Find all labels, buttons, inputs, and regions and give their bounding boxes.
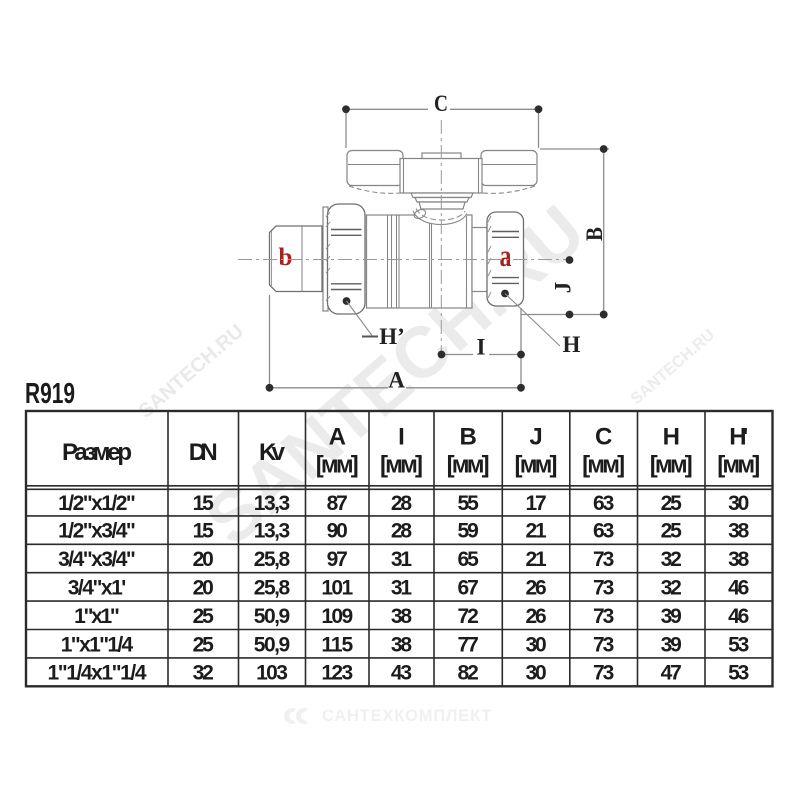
svg-text:65: 65 [458, 548, 480, 571]
svg-text:90: 90 [327, 520, 348, 543]
svg-text:[мм]: [мм] [316, 452, 359, 479]
svg-text:a: a [500, 238, 512, 273]
svg-text:30: 30 [728, 492, 749, 515]
svg-text:63: 63 [593, 520, 614, 543]
svg-text:72: 72 [458, 605, 479, 628]
svg-text:53: 53 [728, 662, 749, 685]
svg-text:H: H [663, 424, 680, 451]
svg-text:[мм]: [мм] [582, 452, 625, 479]
svg-text:A: A [329, 424, 346, 451]
svg-text:32: 32 [193, 662, 214, 685]
svg-text:B: B [582, 227, 607, 241]
svg-text:103: 103 [256, 662, 288, 685]
svg-text:A: A [388, 368, 405, 393]
svg-text:20: 20 [193, 548, 214, 571]
svg-text:C: C [595, 424, 612, 451]
svg-text:17: 17 [525, 492, 546, 515]
svg-text:39: 39 [661, 605, 682, 628]
svg-text:1"x1": 1"x1" [74, 605, 120, 628]
svg-text:[мм]: [мм] [717, 452, 760, 479]
svg-text:39: 39 [661, 633, 682, 656]
svg-text:J: J [529, 424, 542, 451]
svg-text:32: 32 [661, 577, 682, 600]
svg-text:1"1/4x1"1/4: 1"1/4x1"1/4 [48, 662, 147, 685]
svg-text:13,3: 13,3 [254, 520, 290, 543]
svg-text:53: 53 [728, 633, 749, 656]
svg-text:123: 123 [321, 662, 353, 685]
svg-text:46: 46 [728, 605, 749, 628]
svg-text:1/2"x3/4": 1/2"x3/4" [58, 520, 136, 543]
svg-text:87: 87 [327, 492, 348, 515]
svg-text:21: 21 [525, 520, 547, 543]
svg-text:73: 73 [593, 662, 614, 685]
svg-text:47: 47 [661, 662, 682, 685]
svg-text:28: 28 [391, 492, 413, 515]
svg-text:38: 38 [728, 548, 750, 571]
svg-text:I: I [477, 335, 486, 360]
svg-text:Hʹ: Hʹ [729, 424, 748, 451]
svg-text:25: 25 [661, 492, 683, 515]
svg-text:25: 25 [193, 633, 215, 656]
svg-text:САНТЕХКОМПЛЕКТ: САНТЕХКОМПЛЕКТ [322, 707, 492, 725]
svg-text:1/2"x1/2": 1/2"x1/2" [58, 492, 136, 515]
svg-text:15: 15 [193, 492, 215, 515]
svg-text:25,8: 25,8 [254, 548, 291, 571]
svg-text:30: 30 [525, 633, 546, 656]
svg-text:73: 73 [593, 605, 614, 628]
svg-text:25: 25 [661, 520, 683, 543]
svg-text:55: 55 [458, 492, 480, 515]
svg-text:[мм]: [мм] [650, 452, 693, 479]
svg-text:1"x1"1/4: 1"x1"1/4 [61, 633, 134, 656]
svg-text:H: H [563, 332, 581, 357]
svg-text:28: 28 [391, 520, 413, 543]
svg-text:115: 115 [321, 633, 353, 656]
svg-text:b: b [279, 244, 293, 271]
svg-text:73: 73 [593, 633, 614, 656]
svg-text:26: 26 [525, 605, 546, 628]
svg-text:73: 73 [593, 577, 614, 600]
svg-text:50,9: 50,9 [254, 605, 290, 628]
svg-text:3/4"x1': 3/4"x1' [68, 577, 127, 600]
svg-text:20: 20 [193, 577, 214, 600]
svg-text:32: 32 [661, 548, 682, 571]
svg-text:97: 97 [327, 548, 348, 571]
svg-text:[мм]: [мм] [380, 452, 423, 479]
svg-text:82: 82 [458, 662, 479, 685]
svg-text:59: 59 [458, 520, 479, 543]
svg-text:38: 38 [391, 633, 413, 656]
svg-text:H’: H’ [379, 324, 405, 349]
svg-text:38: 38 [728, 520, 750, 543]
svg-text:30: 30 [525, 662, 546, 685]
svg-text:46: 46 [728, 577, 749, 600]
svg-text:25,8: 25,8 [254, 577, 291, 600]
svg-text:67: 67 [458, 577, 479, 600]
svg-text:101: 101 [321, 577, 353, 600]
svg-text:43: 43 [391, 662, 412, 685]
svg-text:38: 38 [391, 605, 413, 628]
svg-text:[мм]: [мм] [447, 452, 490, 479]
svg-text:15: 15 [193, 520, 215, 543]
svg-text:[мм]: [мм] [515, 452, 558, 479]
svg-text:I: I [398, 424, 405, 451]
svg-text:13,3: 13,3 [254, 492, 290, 515]
svg-text:C: C [434, 91, 448, 116]
svg-text:Размер: Размер [62, 439, 132, 466]
svg-text:25: 25 [193, 605, 215, 628]
svg-text:73: 73 [593, 548, 614, 571]
svg-text:21: 21 [525, 548, 547, 571]
svg-text:50,9: 50,9 [254, 633, 290, 656]
svg-text:R919: R919 [25, 378, 75, 410]
svg-text:26: 26 [525, 577, 546, 600]
svg-text:DN: DN [189, 439, 218, 466]
svg-text:3/4"x3/4": 3/4"x3/4" [58, 548, 136, 571]
svg-text:31: 31 [391, 577, 413, 600]
svg-text:109: 109 [321, 605, 353, 628]
svg-text:31: 31 [391, 548, 413, 571]
svg-text:B: B [459, 424, 476, 451]
svg-text:Kv: Kv [259, 439, 286, 466]
svg-text:77: 77 [458, 633, 479, 656]
svg-text:63: 63 [593, 492, 614, 515]
svg-text:J: J [551, 282, 576, 294]
